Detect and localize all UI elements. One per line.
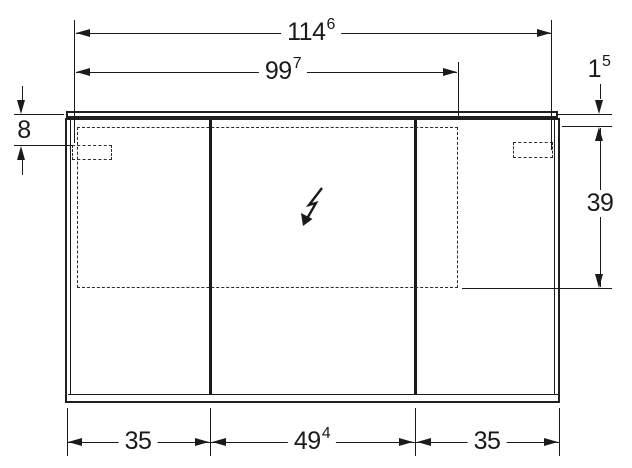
dim-inner-width-ext-right	[458, 62, 459, 118]
cabinet-inner-right-line	[554, 120, 555, 394]
dim-top-offset-arrow-top	[17, 100, 25, 114]
dim-total-width-label: 1146	[281, 19, 341, 46]
dim-profile-height-arrow	[595, 100, 603, 114]
dim-top-offset-label: 8	[15, 117, 32, 144]
dim-top-offset-arrow-top-tail	[22, 86, 23, 100]
dim-top-offset-line-upper	[14, 114, 64, 115]
inner-niche-outline	[77, 127, 458, 288]
light-profile-strip	[66, 111, 558, 118]
dim-door-left-arrow-left	[68, 438, 82, 446]
cabinet-inner-left-line	[70, 120, 71, 394]
cabinet-inner-bottom-line	[68, 394, 558, 395]
dim-door-right-arrow-right	[544, 438, 558, 446]
dim-door-middle-arrow-left	[212, 438, 226, 446]
dim-door-left-arrow-right	[195, 438, 209, 446]
dim-profile-height-arrow-tail	[600, 84, 601, 99]
dim-door-middle-arrow-right	[399, 438, 413, 446]
dim-niche-height-label: 39	[584, 190, 617, 217]
mounting-rail-left	[72, 145, 112, 160]
technical-drawing-canvas: 1146 997 8 15	[0, 0, 632, 468]
dim-doors-ext-2	[210, 408, 211, 456]
dim-doors-ext-3	[415, 408, 416, 456]
dim-door-right-label: 35	[468, 428, 507, 455]
dim-top-offset-arrow-bottom-tail	[22, 160, 23, 175]
dim-door-right-arrow-left	[417, 438, 431, 446]
mounting-rail-right	[513, 142, 553, 158]
dim-inner-width-label: 997	[259, 58, 307, 85]
dim-total-width-ext-right	[551, 20, 552, 150]
electrical-connection-icon	[296, 184, 328, 230]
dim-total-width-arrow-right	[537, 29, 551, 37]
dim-doors-ext-4	[559, 408, 560, 456]
dim-profile-height-line-upper	[556, 114, 612, 115]
dim-inner-width-arrow-right	[443, 68, 457, 76]
dim-door-left-label: 35	[119, 428, 158, 455]
dim-profile-height-line-lower	[562, 126, 612, 127]
dim-top-offset-arrow-bottom	[17, 146, 25, 160]
dim-niche-height-arrow-top	[595, 127, 603, 141]
dim-profile-height-label: 15	[586, 56, 613, 83]
dim-total-width-ext-left	[74, 20, 75, 143]
dim-total-width-arrow-left	[76, 29, 90, 37]
dim-door-middle-label: 494	[288, 428, 336, 455]
dim-doors-ext-1	[67, 408, 68, 456]
dim-niche-height-arrow-bottom	[595, 274, 603, 288]
dim-inner-width-arrow-left	[76, 68, 90, 76]
dim-niche-height-ext-bottom	[462, 288, 612, 289]
